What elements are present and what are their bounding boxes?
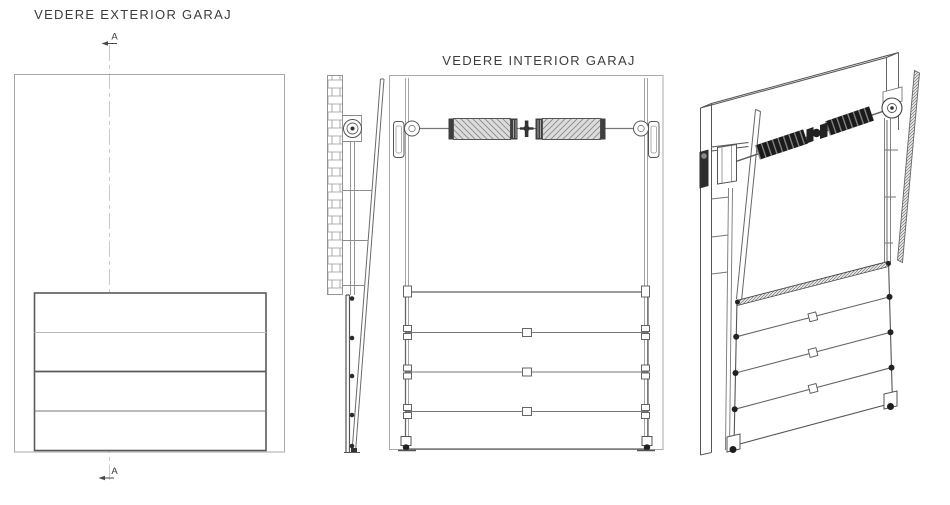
anchor-plate-3d [718, 145, 737, 185]
edge-hinge [642, 413, 650, 419]
torsion-spring-left [449, 119, 518, 140]
top-roller-bracket [642, 286, 650, 297]
center-hinge [523, 408, 532, 416]
roller [350, 296, 355, 301]
vertical-track-left-3d [712, 188, 733, 450]
coupling-hub-3d [812, 129, 820, 137]
section-arrow-head [99, 476, 106, 481]
edge-hinge [733, 334, 739, 340]
section-marker-top-label: A [111, 32, 118, 43]
spring-cap [449, 119, 454, 140]
edge-hinge [886, 261, 891, 266]
perspective-view [700, 53, 920, 456]
spring-body [454, 119, 511, 140]
bottom-roller [403, 444, 409, 450]
bracket-plate [642, 437, 652, 446]
edge-hinge [404, 334, 412, 340]
bracket-plate [401, 437, 411, 446]
section-marker-top: A [102, 32, 119, 46]
door-panel-profile [346, 295, 350, 452]
center-hinge [523, 329, 532, 337]
section-arrow-head [102, 41, 109, 46]
edge-hinges-left [404, 286, 412, 419]
center-bearing-coupling [520, 121, 534, 138]
winding-cone [536, 119, 543, 140]
vertical-track-section [351, 142, 355, 295]
section-marker-bottom: A [99, 466, 119, 480]
edge-hinge [642, 405, 650, 411]
roller [350, 413, 355, 418]
bearing-plate-right [649, 122, 660, 158]
brick-wall-section [328, 76, 343, 295]
torsion-spring-right [536, 119, 606, 140]
bottom-bracket-section [351, 448, 357, 452]
rod-cap [701, 153, 707, 159]
center-coupling-3d [807, 123, 828, 144]
wall-right-edge [887, 53, 899, 263]
section-marker-bottom-label: A [111, 466, 118, 477]
interior-view [390, 76, 664, 451]
ceiling-track-left [737, 110, 761, 302]
spring-body [543, 119, 601, 140]
bottom-bracket-right-3d [884, 391, 897, 410]
bottom-roller [644, 444, 650, 450]
center-hinge [523, 368, 532, 376]
track-support-rungs [343, 191, 372, 286]
garage-door-drawing: A A [0, 0, 950, 505]
top-roller-bracket [404, 286, 412, 297]
cable-drum-left [405, 121, 420, 136]
coupling-hub [524, 126, 530, 132]
exterior-view: A A [15, 32, 285, 481]
bearing-plate-left [394, 122, 405, 158]
edge-hinge [404, 373, 412, 379]
edge-hinge [642, 334, 650, 340]
section-view [328, 76, 385, 453]
edge-hinge [404, 413, 412, 419]
edge-hinge [887, 294, 893, 300]
edge-hinge [889, 365, 895, 371]
edge-hinge [642, 365, 650, 371]
bottom-roller [730, 446, 737, 453]
winding-cone-3d [807, 127, 814, 144]
bottom-bracket-left-3d [727, 434, 740, 453]
edge-hinge [642, 373, 650, 379]
center-hinges [523, 329, 532, 416]
drawing-canvas: VEDERE EXTERIOR GARAJ VEDERE INTERIOR GA… [0, 0, 950, 505]
roller [350, 374, 355, 379]
edge-hinge [733, 370, 739, 376]
edge-hinge [732, 406, 738, 412]
roller [350, 444, 355, 449]
wall-top-face [701, 53, 899, 109]
edge-hinge [642, 326, 650, 332]
bottom-roller [887, 403, 894, 410]
center-hinge [808, 348, 818, 358]
edge-hinge [404, 326, 412, 332]
edge-hinge [404, 405, 412, 411]
winding-cone-3d [820, 123, 828, 140]
center-hinge [808, 312, 818, 322]
edge-hinge [735, 300, 740, 305]
shaft-center [351, 127, 355, 131]
drum-center [890, 106, 894, 110]
edge-hinge [888, 329, 894, 335]
edge-hinge [404, 365, 412, 371]
roller [350, 336, 355, 341]
spring-cap [601, 119, 606, 140]
center-hinge [808, 384, 818, 394]
winding-cone [511, 119, 518, 140]
cable-drum-right [634, 121, 649, 136]
